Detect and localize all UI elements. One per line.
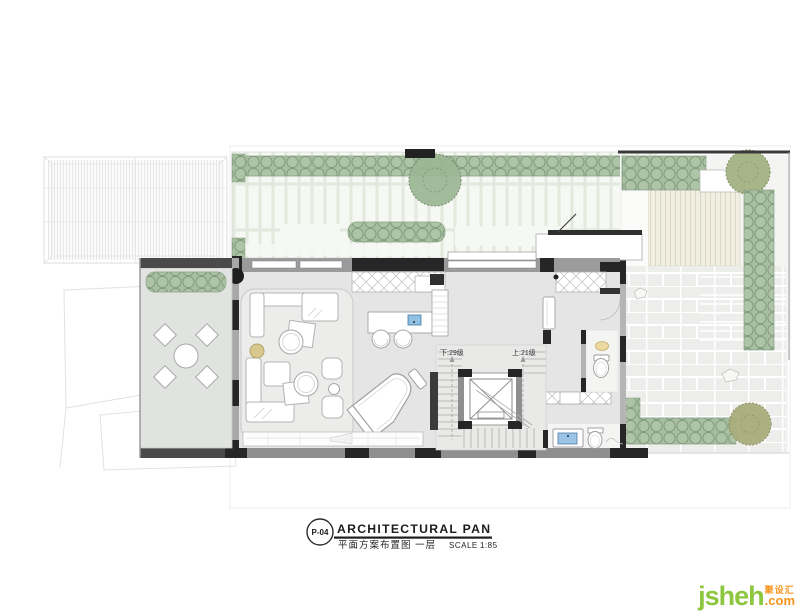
left-terrace bbox=[140, 258, 232, 458]
terrace-table bbox=[174, 344, 198, 368]
window-seat bbox=[243, 432, 423, 446]
island-sink bbox=[408, 315, 421, 325]
watermark-tld: .com bbox=[765, 595, 795, 607]
watermark-brand: jsheh bbox=[698, 586, 764, 607]
hedge-courtyard-bottom bbox=[628, 418, 736, 444]
courtyard-tree-bottom bbox=[729, 403, 771, 445]
courtyard-tree-top bbox=[726, 150, 770, 194]
stairs-down-label: 下:29级 bbox=[440, 348, 464, 357]
hall-bench bbox=[543, 297, 555, 329]
tall-cabinet bbox=[432, 290, 448, 336]
hedge-courtyard-right bbox=[744, 190, 774, 350]
elevator bbox=[458, 369, 522, 429]
scale-value: 1:85 bbox=[480, 541, 498, 550]
basin bbox=[596, 342, 609, 351]
hedge-courtyard-top bbox=[622, 156, 706, 190]
right-courtyard bbox=[618, 150, 790, 453]
vanity-sink bbox=[558, 433, 577, 444]
stairs-up-label: 上:21级 bbox=[512, 348, 536, 357]
brass-side-table bbox=[250, 344, 264, 358]
bathroom-upper bbox=[581, 330, 618, 392]
courtyard-deck bbox=[648, 190, 740, 266]
hedge-left-lower bbox=[232, 238, 245, 258]
hedge-middle-row bbox=[348, 222, 445, 242]
page-number: P-04 bbox=[312, 528, 329, 537]
title-block: P-04 ARCHITECTURAL PAN 平面方案布置图 一层 SCALE … bbox=[307, 519, 498, 551]
floor-plan-canvas: 下:29级 上:21级 P-04 ARCHITECTURAL PAN 平面方案布… bbox=[0, 0, 800, 613]
toilet bbox=[594, 355, 610, 378]
bathroom-lower bbox=[548, 424, 623, 449]
scale-label: SCALE bbox=[449, 541, 478, 550]
kitchen-island bbox=[368, 312, 432, 333]
garden-tree bbox=[409, 154, 461, 206]
stair-core: 下:29级 上:21级 bbox=[430, 330, 551, 450]
drawing-sheet: 下:29级 上:21级 P-04 ARCHITECTURAL PAN 平面方案布… bbox=[0, 0, 800, 613]
sheet-title-en: ARCHITECTURAL PAN bbox=[337, 522, 491, 536]
neighbor-roof bbox=[44, 157, 227, 263]
title-underline bbox=[334, 537, 492, 539]
pantry-cabinets bbox=[556, 272, 606, 292]
watermark-logo: jsheh 聚设汇 .com bbox=[698, 586, 795, 607]
toilet bbox=[588, 428, 603, 449]
hedge-left-corner bbox=[232, 154, 245, 182]
roof-beam bbox=[405, 149, 435, 158]
sheet-title-cn: 平面方案布置图 一层 bbox=[338, 539, 436, 551]
hedge-terrace bbox=[146, 272, 226, 292]
